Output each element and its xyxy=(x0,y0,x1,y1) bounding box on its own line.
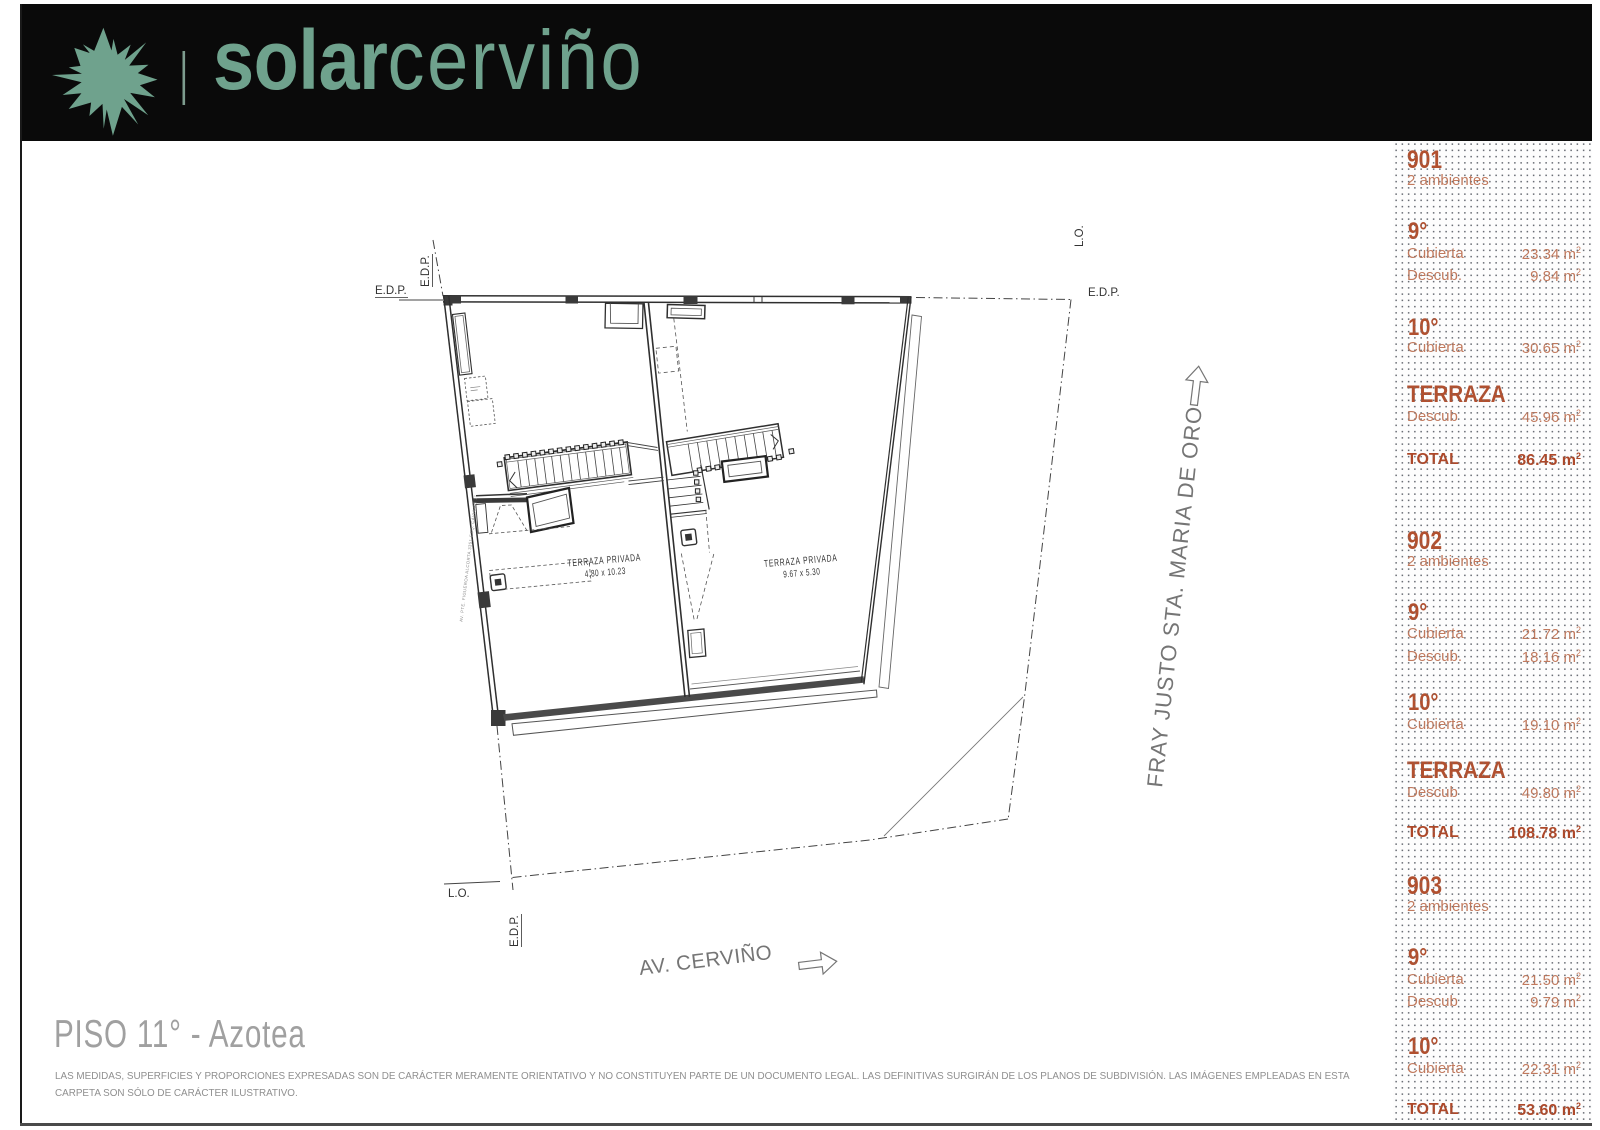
svg-text:AV. PTE. FIGUEROA ALCORTA 3351: AV. PTE. FIGUEROA ALCORTA 3351 ESQ. CAVI… xyxy=(459,495,479,622)
svg-text:E.D.P.: E.D.P. xyxy=(375,285,407,297)
svg-text:4.80 x 10.23: 4.80 x 10.23 xyxy=(584,566,626,580)
svg-text:E.D.P.: E.D.P. xyxy=(1088,287,1120,299)
svg-text:TERRAZA PRIVADA: TERRAZA PRIVADA xyxy=(763,552,838,570)
svg-text:L.O.: L.O. xyxy=(1074,225,1086,247)
svg-text:9.67 x 5.30: 9.67 x 5.30 xyxy=(783,566,821,580)
svg-text:FRAY JUSTO STA. MARIA DE ORO: FRAY JUSTO STA. MARIA DE ORO xyxy=(1142,405,1207,789)
svg-text:AV. CERVIÑO: AV. CERVIÑO xyxy=(638,941,774,980)
svg-text:TERRAZA PRIVADA: TERRAZA PRIVADA xyxy=(567,551,642,569)
svg-text:L.O.: L.O. xyxy=(448,888,470,900)
svg-text:E.D.P.: E.D.P. xyxy=(509,915,521,947)
svg-text:E.D.P.: E.D.P. xyxy=(420,255,432,287)
